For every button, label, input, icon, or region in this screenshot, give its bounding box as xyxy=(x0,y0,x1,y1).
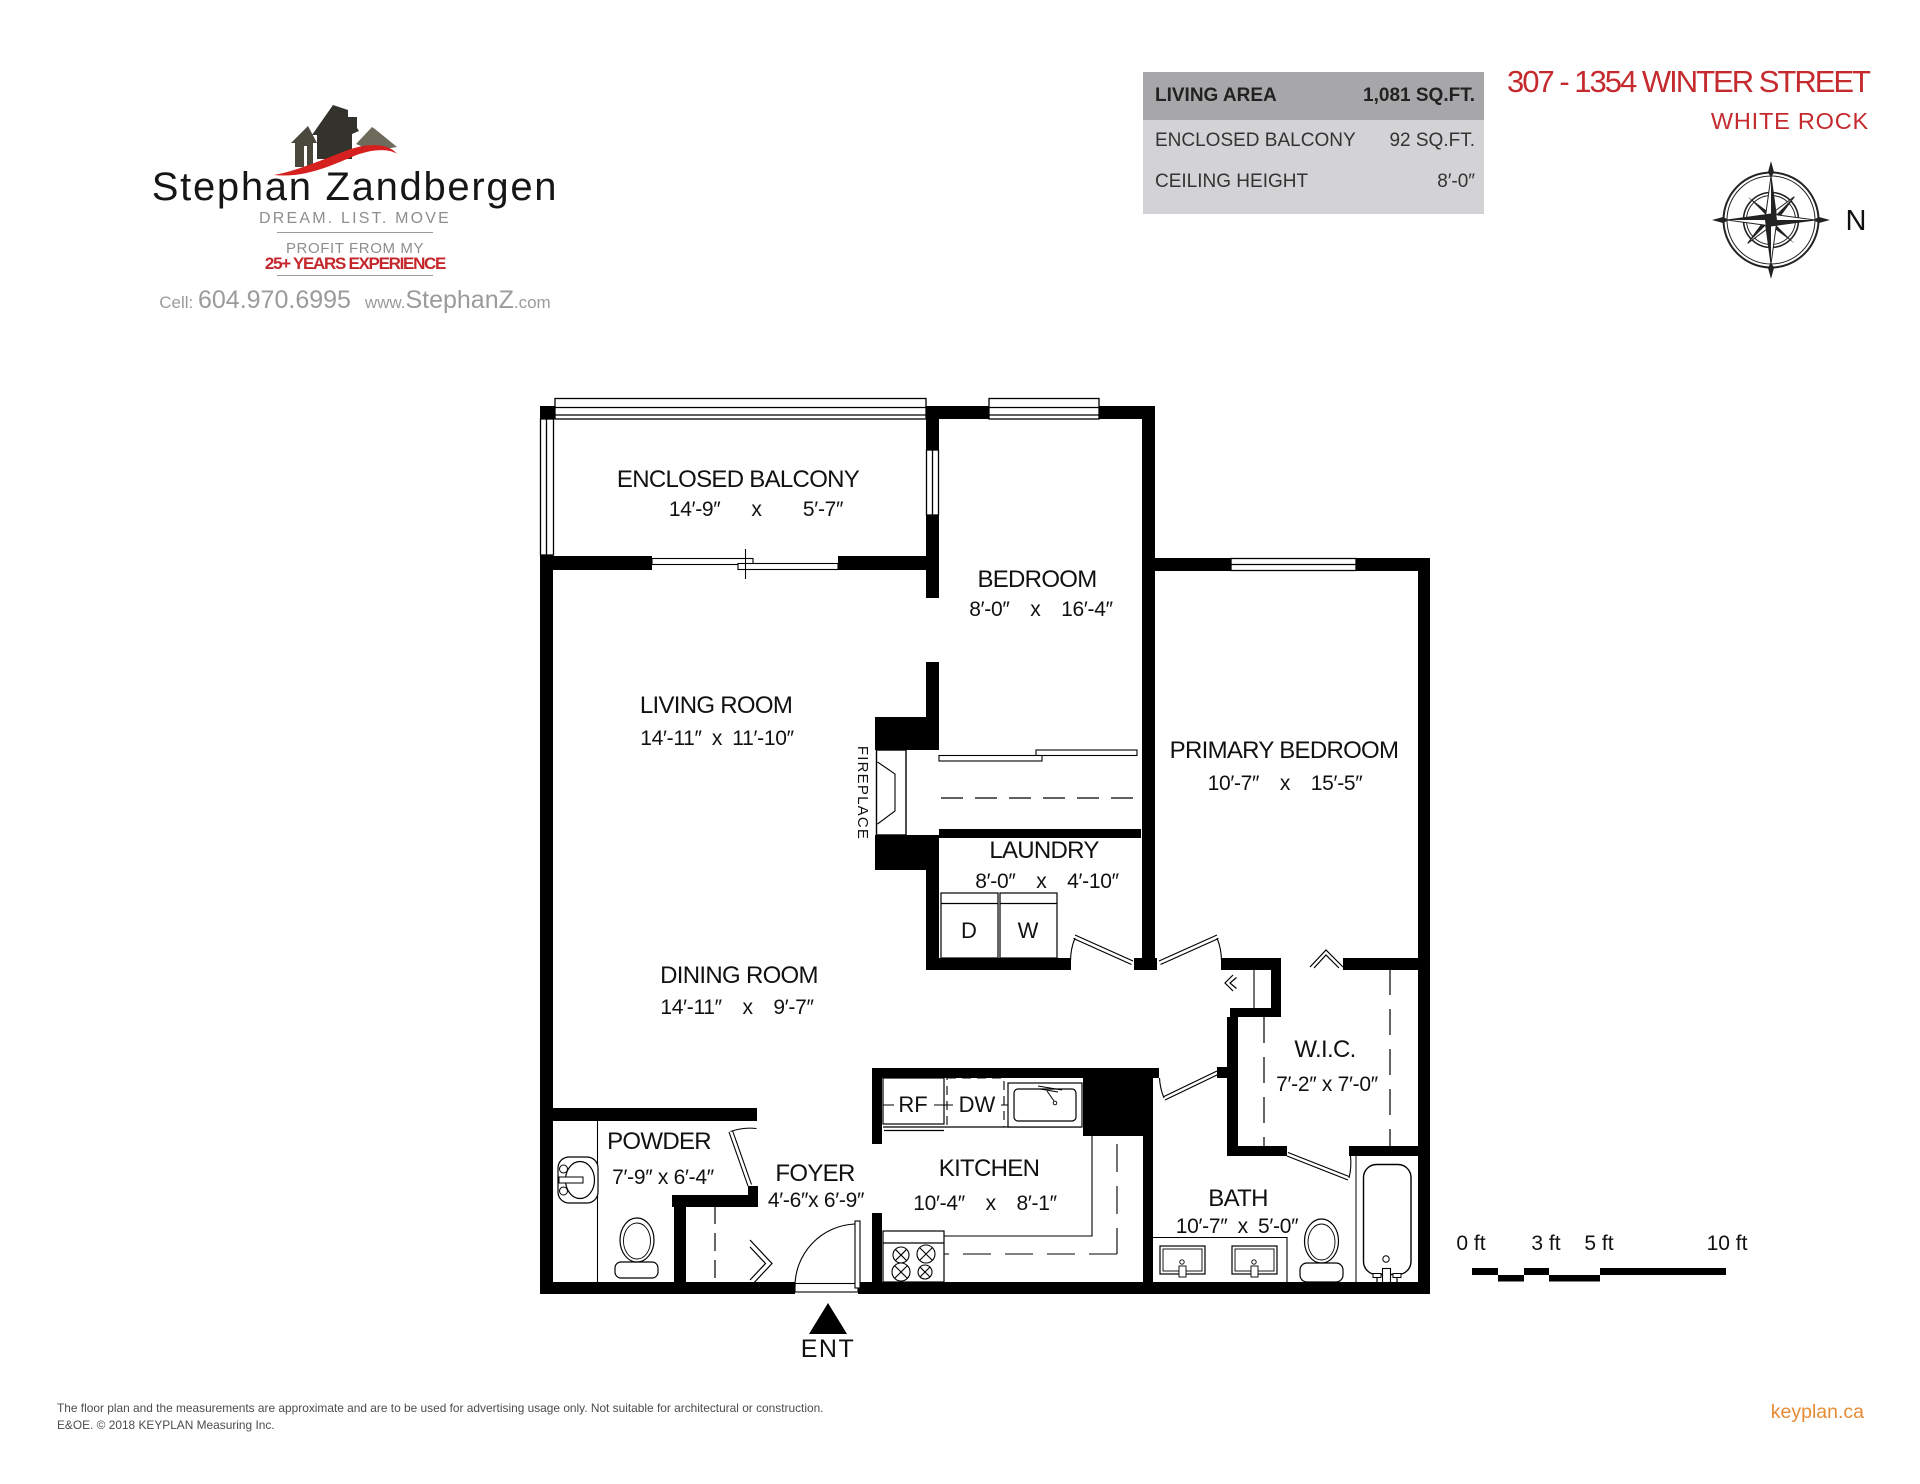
svg-text:7′-2″ x 7′-0″: 7′-2″ x 7′-0″ xyxy=(1276,1073,1379,1096)
svg-text:LIVING ROOM: LIVING ROOM xyxy=(640,692,792,719)
svg-text:14′-9″ x 5′-7″: 14′-9″ x 5′-7″ xyxy=(669,498,844,521)
svg-text:14′-11″ x 9′-7″: 14′-11″ x 9′-7″ xyxy=(660,996,814,1019)
svg-text:ENT: ENT xyxy=(801,1335,856,1363)
svg-text:BATH: BATH xyxy=(1208,1185,1267,1212)
svg-text:DINING ROOM: DINING ROOM xyxy=(660,962,818,989)
svg-text:POWDER: POWDER xyxy=(607,1128,711,1155)
svg-text:FOYER: FOYER xyxy=(775,1160,855,1187)
svg-text:RF: RF xyxy=(898,1092,927,1117)
svg-text:LAUNDRY: LAUNDRY xyxy=(989,837,1099,864)
svg-text:3 ft: 3 ft xyxy=(1531,1232,1560,1255)
svg-text:D: D xyxy=(961,918,977,943)
svg-text:KITCHEN: KITCHEN xyxy=(939,1155,1039,1182)
svg-text:N: N xyxy=(1846,205,1867,237)
svg-text:ENCLOSED BALCONY: ENCLOSED BALCONY xyxy=(617,466,860,493)
svg-text:PRIMARY BEDROOM: PRIMARY BEDROOM xyxy=(1170,737,1399,764)
svg-text:W: W xyxy=(1018,918,1039,943)
svg-text:0 ft: 0 ft xyxy=(1456,1232,1485,1255)
svg-text:FIREPLACE: FIREPLACE xyxy=(854,746,871,840)
svg-text:10 ft: 10 ft xyxy=(1707,1232,1748,1255)
svg-text:8′-0″ x 4′-10″: 8′-0″ x 4′-10″ xyxy=(975,870,1119,893)
svg-text:DW: DW xyxy=(959,1092,996,1117)
svg-text:W.I.C.: W.I.C. xyxy=(1294,1036,1355,1063)
svg-text:10′-4″ x 8′-1″: 10′-4″ x 8′-1″ xyxy=(913,1192,1057,1215)
svg-text:4′-6″x 6′-9″: 4′-6″x 6′-9″ xyxy=(768,1189,865,1212)
svg-text:8′-0″ x 16′-4″: 8′-0″ x 16′-4″ xyxy=(969,598,1113,621)
svg-text:10′-7″ x 5′-0″: 10′-7″ x 5′-0″ xyxy=(1176,1215,1299,1238)
svg-text:5 ft: 5 ft xyxy=(1584,1232,1613,1255)
svg-text:10′-7″ x 15′-5″: 10′-7″ x 15′-5″ xyxy=(1208,772,1364,795)
svg-text:BEDROOM: BEDROOM xyxy=(977,566,1096,593)
svg-text:7′-9″ x 6′-4″: 7′-9″ x 6′-4″ xyxy=(612,1166,715,1189)
svg-text:14′-11″ x 11′-10″: 14′-11″ x 11′-10″ xyxy=(640,727,794,750)
